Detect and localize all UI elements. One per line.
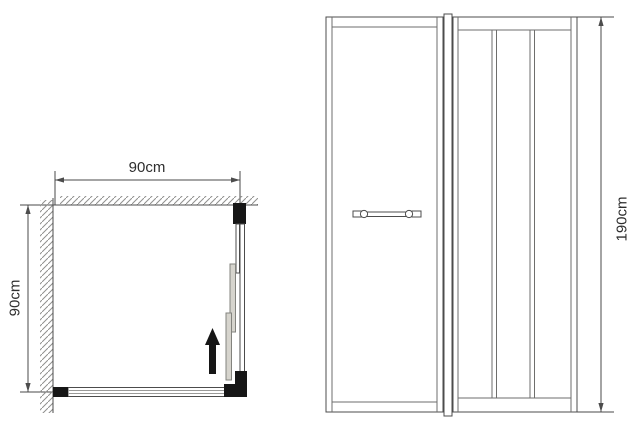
- plan-sliding-panel-front: [226, 313, 232, 380]
- arrowhead-up-icon: [598, 17, 603, 26]
- arrow-up-icon: [205, 328, 220, 345]
- plan-top-wall-profile: [233, 203, 246, 224]
- handle-bar: [367, 212, 407, 217]
- elevation-height-label: 190cm: [613, 196, 630, 241]
- side-panel-divider: [530, 30, 535, 398]
- plan-top-wall: [48, 196, 258, 205]
- plan-slide-direction-arrow: [205, 328, 220, 374]
- arrowhead-down-icon: [598, 403, 603, 412]
- side-panel-divider: [492, 30, 497, 398]
- arrowhead-right-icon: [231, 177, 240, 182]
- bottom-panel-outline: [68, 388, 226, 397]
- fixed-glass-edge: [236, 224, 240, 273]
- plan-fixed-panel-track: [236, 224, 245, 386]
- plan-left-wall-profile: [53, 387, 68, 397]
- elevation-view: 190cm: [326, 14, 630, 416]
- plan-width-label: 90cm: [129, 159, 166, 176]
- elevation-height-dimension: 190cm: [577, 17, 630, 412]
- side-panel-outer-frame: [453, 17, 577, 412]
- handle-knob-left: [360, 210, 367, 217]
- plan-bottom-panel: [53, 387, 226, 397]
- arrowhead-up-icon: [25, 205, 30, 214]
- technical-drawing-canvas: 90cm 90cm: [0, 0, 638, 436]
- wall-hatching: [40, 200, 53, 413]
- elevation-side-panel: [453, 17, 577, 412]
- arrowhead-left-icon: [55, 177, 64, 182]
- plan-depth-label: 90cm: [6, 280, 23, 317]
- elevation-door-panel: [326, 17, 443, 412]
- handle-end-cap-right: [412, 211, 421, 217]
- track-profile: [240, 224, 245, 386]
- plan-view: 90cm 90cm: [6, 159, 258, 413]
- elevation-door-handle: [353, 210, 421, 217]
- arrow-stem: [209, 345, 216, 374]
- elevation-center-post: [444, 14, 452, 416]
- handle-knob-right: [405, 210, 412, 217]
- plan-left-wall: [40, 198, 53, 413]
- wall-hatching: [60, 196, 258, 205]
- arrowhead-down-icon: [25, 383, 30, 392]
- technical-drawing-page: 90cm 90cm: [0, 0, 638, 436]
